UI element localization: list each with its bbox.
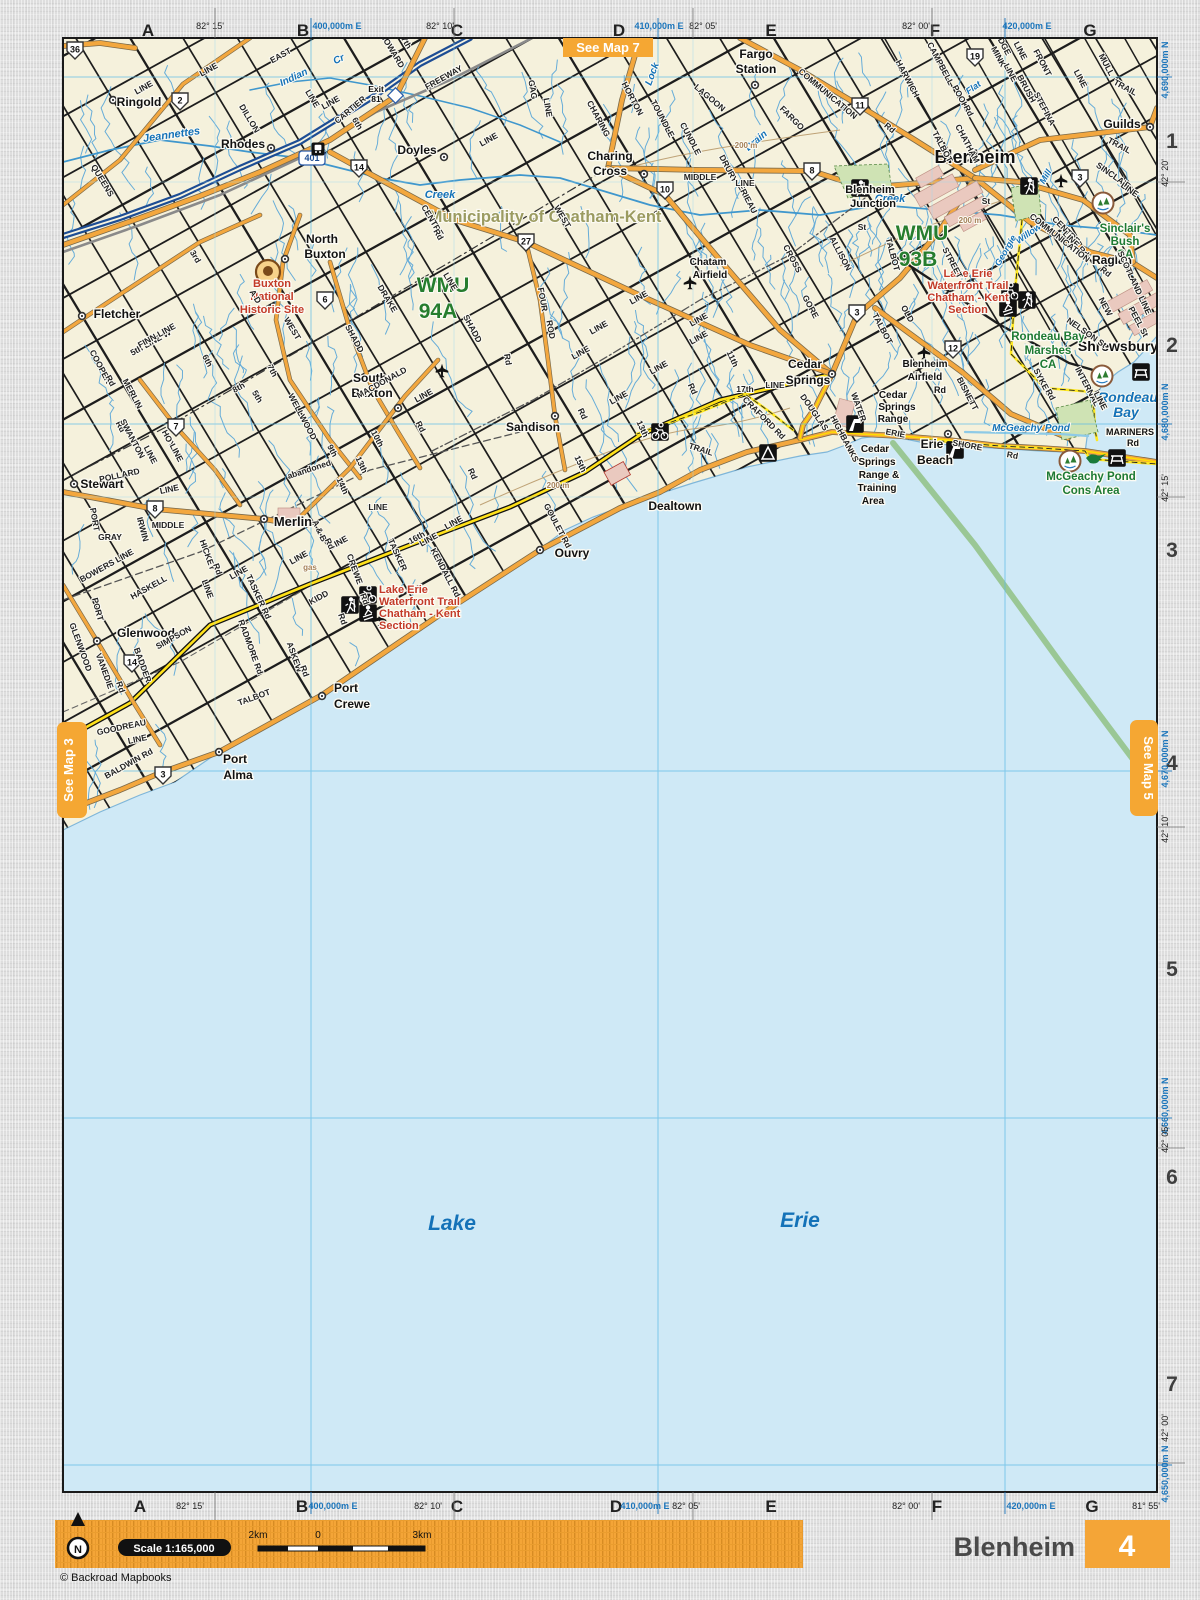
svg-text:Training: Training (858, 483, 897, 494)
svg-text:Airfield: Airfield (693, 270, 727, 281)
svg-text:G: G (1083, 21, 1096, 40)
svg-text:17th: 17th (736, 384, 753, 394)
svg-text:MIDDLE: MIDDLE (684, 172, 717, 182)
svg-text:42° 05': 42° 05' (1160, 1125, 1170, 1153)
svg-text:Historic Site: Historic Site (240, 304, 304, 316)
svg-text:42° 15': 42° 15' (1160, 474, 1170, 502)
svg-text:200 m: 200 m (735, 141, 758, 150)
svg-text:Springs: Springs (786, 373, 831, 387)
svg-text:14: 14 (354, 163, 364, 173)
svg-text:Cons Area: Cons Area (1062, 485, 1120, 497)
svg-text:Rondeau Bay: Rondeau Bay (1011, 331, 1085, 343)
svg-text:2: 2 (1166, 334, 1178, 357)
svg-text:Sinclair's: Sinclair's (1100, 223, 1151, 235)
svg-text:Station: Station (736, 62, 777, 76)
svg-text:420,000m E: 420,000m E (1002, 21, 1051, 31)
svg-text:Lake: Lake (428, 1212, 476, 1235)
svg-text:Springs: Springs (858, 457, 896, 468)
svg-text:Crewe: Crewe (334, 697, 370, 711)
svg-text:8: 8 (152, 504, 157, 514)
svg-text:27: 27 (521, 237, 531, 247)
svg-text:Marshes: Marshes (1025, 345, 1072, 357)
svg-text:Cedar: Cedar (788, 357, 822, 371)
svg-text:82° 10': 82° 10' (426, 21, 454, 31)
svg-text:Guilds: Guilds (1103, 117, 1141, 131)
svg-text:1: 1 (1166, 130, 1178, 153)
svg-text:Scale 1:165,000: Scale 1:165,000 (133, 1543, 214, 1555)
svg-text:Exit: Exit (368, 84, 384, 94)
svg-text:8: 8 (809, 166, 814, 176)
svg-text:gas: gas (303, 563, 317, 572)
svg-text:Sandison: Sandison (506, 420, 560, 434)
svg-text:LINE: LINE (735, 178, 755, 188)
svg-text:Springs: Springs (878, 402, 916, 413)
svg-text:0: 0 (315, 1530, 321, 1541)
svg-text:10: 10 (660, 185, 670, 195)
svg-text:See Map 3: See Map 3 (61, 738, 76, 802)
svg-text:LINE: LINE (765, 380, 785, 390)
svg-text:Blenheim: Blenheim (953, 1532, 1075, 1562)
svg-text:2km: 2km (249, 1530, 268, 1541)
svg-text:Waterfront Trail: Waterfront Trail (928, 280, 1009, 292)
svg-text:Cedar: Cedar (879, 390, 907, 401)
svg-text:B: B (297, 21, 309, 40)
svg-text:GRAY: GRAY (98, 532, 122, 542)
svg-text:81: 81 (371, 94, 381, 104)
svg-text:North: North (306, 232, 338, 246)
svg-text:Cross: Cross (593, 164, 627, 178)
svg-text:400,000m E: 400,000m E (312, 21, 361, 31)
svg-text:Erie: Erie (780, 1209, 820, 1232)
svg-text:Junction: Junction (850, 198, 896, 210)
svg-text:Bush: Bush (1111, 236, 1140, 248)
svg-text:Waterfront Trail: Waterfront Trail (379, 596, 460, 608)
svg-text:Blenheim: Blenheim (845, 184, 895, 196)
svg-text:2: 2 (177, 96, 182, 106)
svg-text:A: A (134, 1497, 146, 1516)
svg-text:Port: Port (334, 681, 358, 695)
svg-text:4,680,000m N: 4,680,000m N (1160, 383, 1170, 440)
svg-text:Fletcher: Fletcher (94, 307, 141, 321)
svg-text:Area: Area (862, 496, 885, 507)
svg-text:McGeachy Pond: McGeachy Pond (1046, 471, 1135, 483)
svg-text:7: 7 (1166, 1373, 1178, 1396)
svg-text:Charing: Charing (587, 149, 632, 163)
svg-text:3: 3 (1077, 173, 1082, 183)
svg-text:G: G (1085, 1497, 1098, 1516)
svg-text:3: 3 (160, 770, 165, 780)
svg-text:Rd: Rd (934, 385, 946, 395)
svg-text:81° 55': 81° 55' (1132, 1501, 1160, 1511)
svg-text:82° 15': 82° 15' (176, 1501, 204, 1511)
svg-text:A: A (142, 21, 154, 40)
svg-text:82° 00': 82° 00' (902, 21, 930, 31)
svg-text:Blenheim: Blenheim (902, 359, 947, 370)
svg-text:42° 00': 42° 00' (1160, 1414, 1170, 1442)
svg-text:E: E (765, 1497, 776, 1516)
svg-text:12: 12 (948, 344, 958, 354)
svg-text:200 m: 200 m (547, 481, 570, 490)
svg-text:Beach: Beach (917, 453, 953, 467)
svg-text:Creek: Creek (425, 189, 456, 201)
svg-text:Ouvry: Ouvry (555, 546, 590, 560)
svg-text:200 m: 200 m (959, 216, 982, 225)
svg-text:See Map 7: See Map 7 (576, 40, 640, 55)
svg-text:Merlin: Merlin (274, 514, 312, 529)
svg-text:St: St (982, 196, 991, 206)
svg-text:420,000m E: 420,000m E (1006, 1501, 1055, 1511)
svg-text:42° 10': 42° 10' (1160, 815, 1170, 843)
svg-text:E: E (765, 21, 776, 40)
svg-text:Chatam: Chatam (690, 257, 727, 268)
svg-text:3: 3 (1166, 539, 1178, 562)
svg-text:Chatham - Kent: Chatham - Kent (379, 608, 461, 620)
svg-text:Erie: Erie (921, 437, 944, 451)
svg-text:6: 6 (322, 295, 327, 305)
svg-text:Bay: Bay (1113, 404, 1140, 420)
svg-text:Range &: Range & (859, 470, 900, 481)
svg-text:3: 3 (854, 308, 859, 318)
svg-text:7: 7 (173, 422, 178, 432)
svg-text:36: 36 (70, 45, 80, 55)
svg-text:Ringold: Ringold (117, 95, 162, 109)
svg-text:Municipality of Chatham-Kent: Municipality of Chatham-Kent (429, 208, 662, 226)
svg-text:82° 00': 82° 00' (892, 1501, 920, 1511)
svg-text:3km: 3km (413, 1530, 432, 1541)
svg-text:See Map 5: See Map 5 (1141, 736, 1156, 800)
svg-text:4,670,000m N: 4,670,000m N (1160, 730, 1170, 787)
svg-text:82° 15': 82° 15' (196, 21, 224, 31)
svg-text:Alma: Alma (223, 768, 253, 782)
svg-text:C: C (451, 1497, 463, 1516)
svg-text:LINE: LINE (368, 502, 388, 512)
svg-text:42° 20': 42° 20' (1160, 159, 1170, 187)
svg-text:11: 11 (855, 101, 865, 111)
svg-text:Range: Range (878, 414, 909, 425)
svg-text:82° 10': 82° 10' (414, 1501, 442, 1511)
svg-text:Section: Section (379, 620, 419, 632)
svg-text:N: N (74, 1544, 82, 1556)
svg-text:93B: 93B (899, 248, 938, 271)
svg-text:19: 19 (970, 52, 980, 62)
svg-text:MARINERS: MARINERS (1106, 427, 1154, 437)
svg-text:Cedar: Cedar (861, 444, 889, 455)
svg-text:5: 5 (1166, 958, 1178, 981)
svg-text:82° 05': 82° 05' (672, 1501, 700, 1511)
svg-text:Lake Erie: Lake Erie (379, 584, 428, 596)
svg-text:Chatham - Kent: Chatham - Kent (927, 292, 1009, 304)
svg-text:McGeachy Pond: McGeachy Pond (992, 423, 1071, 434)
svg-text:410,000m E: 410,000m E (620, 1501, 669, 1511)
svg-text:4,690,000m N: 4,690,000m N (1160, 41, 1170, 98)
svg-text:Section: Section (948, 304, 988, 316)
svg-text:410,000m E: 410,000m E (634, 21, 683, 31)
svg-text:Rd: Rd (1127, 438, 1139, 448)
svg-text:400,000m E: 400,000m E (308, 1501, 357, 1511)
svg-text:Fargo: Fargo (739, 47, 772, 61)
svg-text:Port: Port (223, 752, 247, 766)
svg-text:Airfield: Airfield (908, 372, 942, 383)
svg-text:© Backroad Mapbooks: © Backroad Mapbooks (60, 1572, 172, 1584)
svg-text:Buxton: Buxton (253, 278, 291, 290)
svg-text:Rd: Rd (1006, 449, 1019, 461)
svg-text:WMU: WMU (896, 222, 948, 245)
svg-text:Rd: Rd (502, 353, 514, 366)
svg-text:F: F (930, 21, 940, 40)
svg-text:B: B (296, 1497, 308, 1516)
svg-text:Rhodes: Rhodes (221, 137, 265, 151)
svg-text:D: D (613, 21, 625, 40)
svg-text:4,650,000m N: 4,650,000m N (1160, 1445, 1170, 1502)
svg-text:Doyles: Doyles (397, 143, 437, 157)
svg-text:4: 4 (1119, 1530, 1136, 1563)
svg-text:6: 6 (1166, 1166, 1178, 1189)
svg-text:Dealtown: Dealtown (648, 499, 701, 513)
svg-text:Buxton: Buxton (304, 247, 345, 261)
svg-text:94A: 94A (419, 300, 458, 323)
svg-text:St: St (858, 222, 867, 232)
svg-text:F: F (932, 1497, 942, 1516)
svg-text:MIDDLE: MIDDLE (152, 520, 185, 530)
